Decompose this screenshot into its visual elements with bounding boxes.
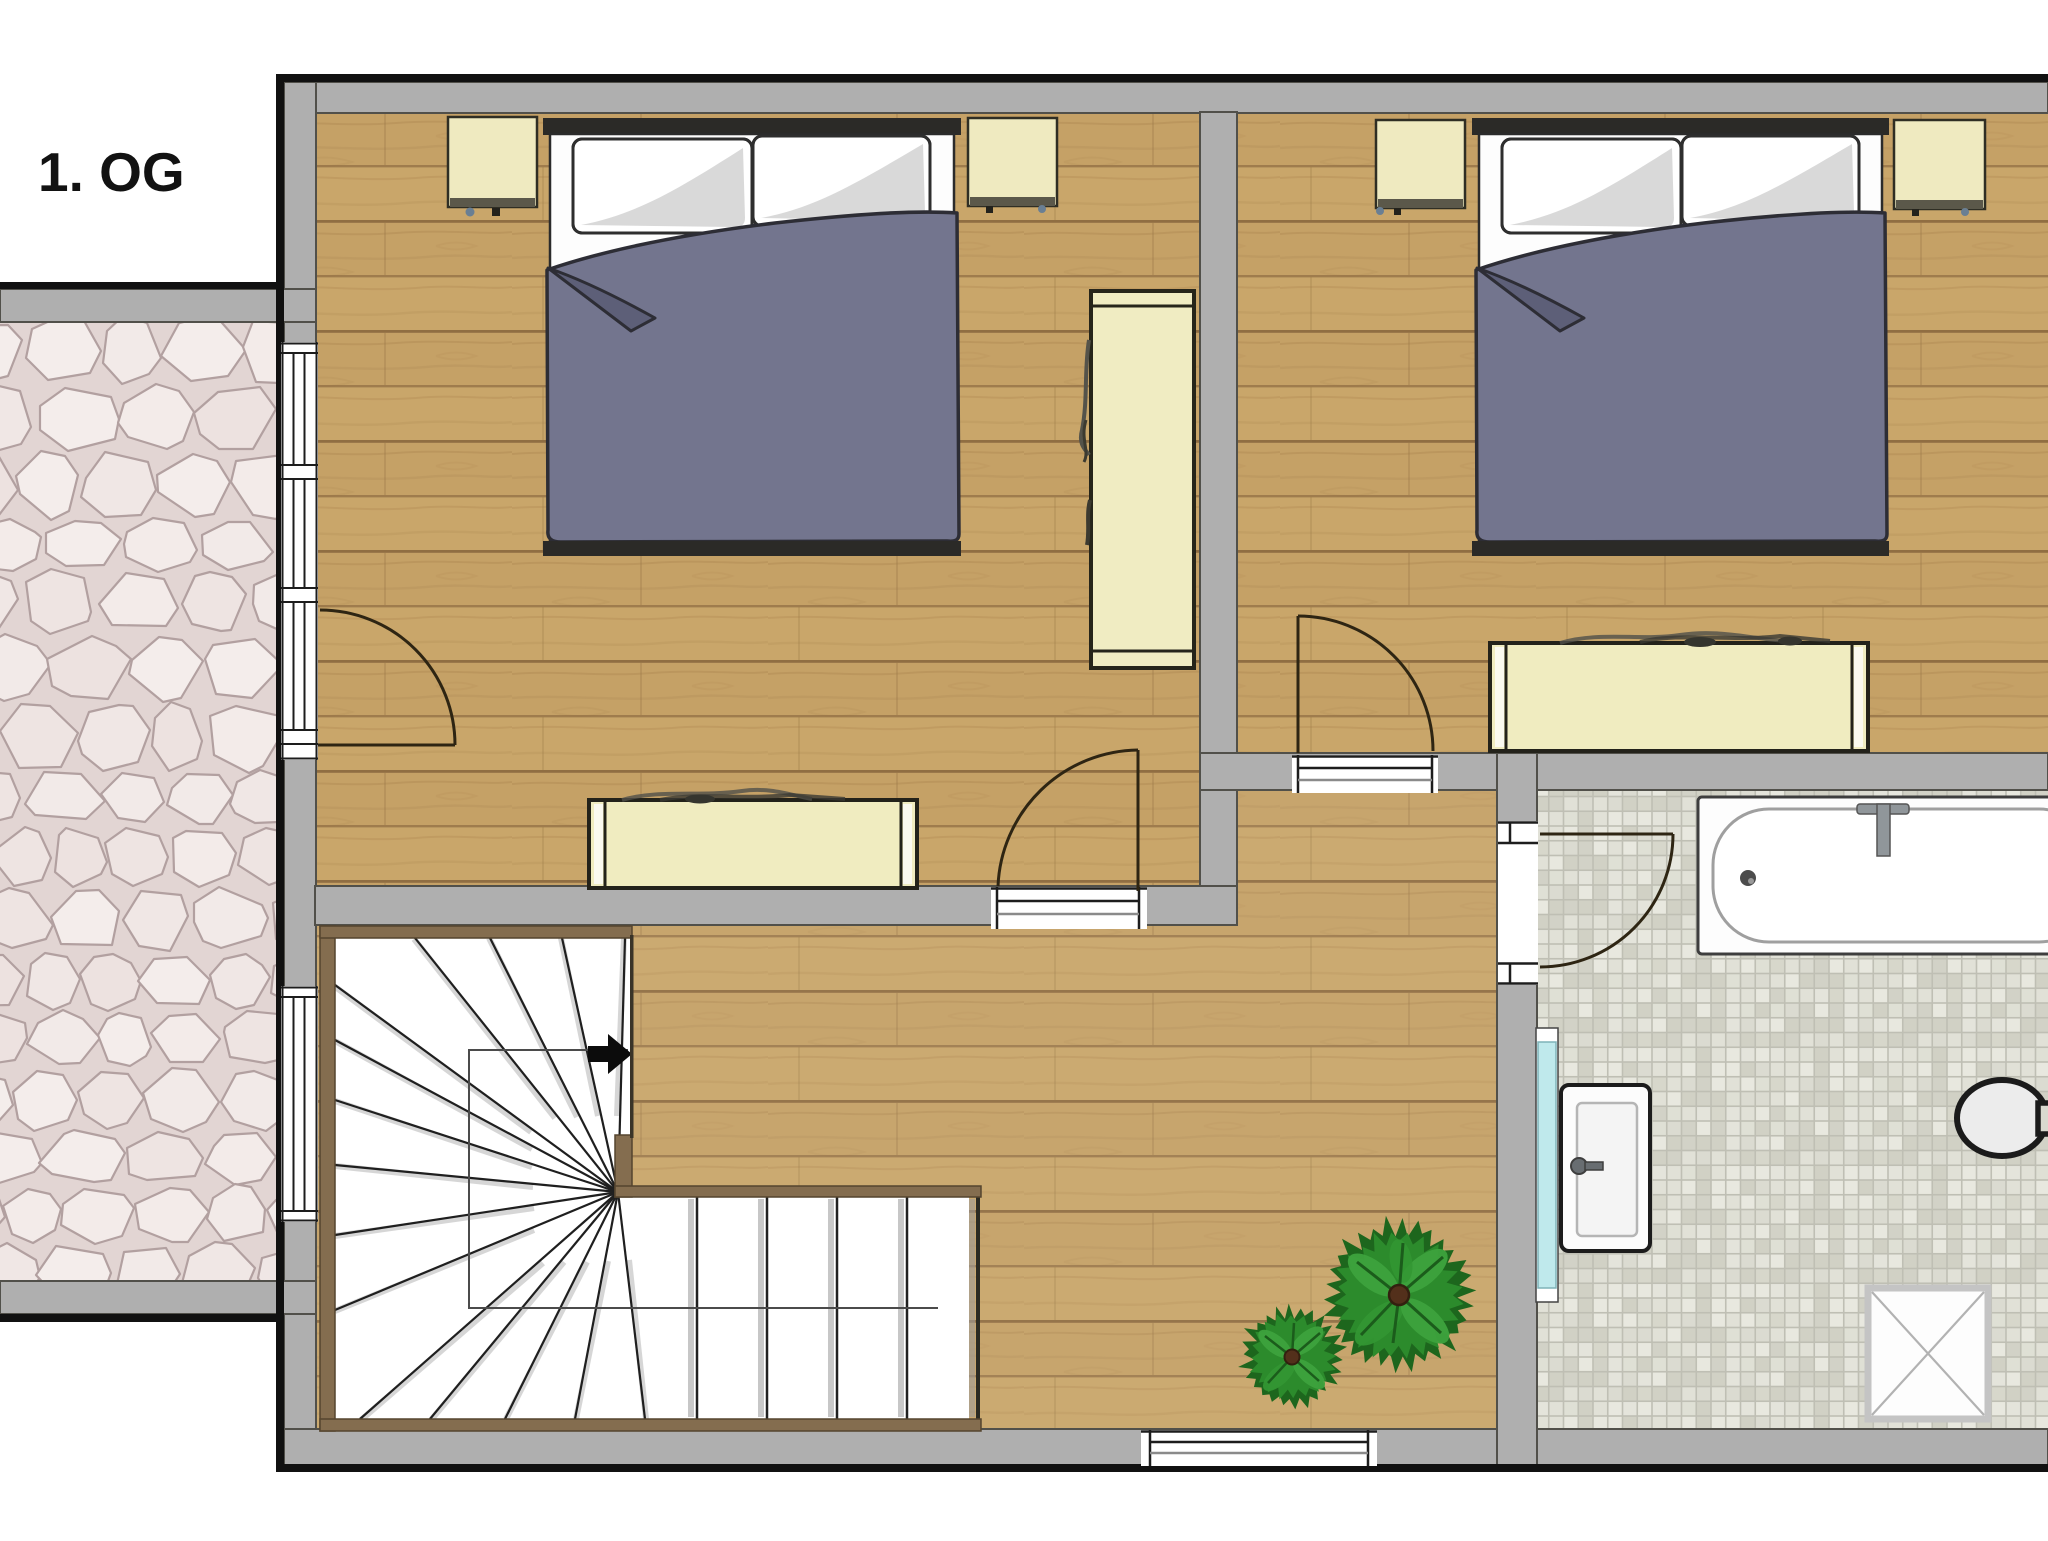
svg-text:1. OG: 1. OG (38, 141, 185, 203)
